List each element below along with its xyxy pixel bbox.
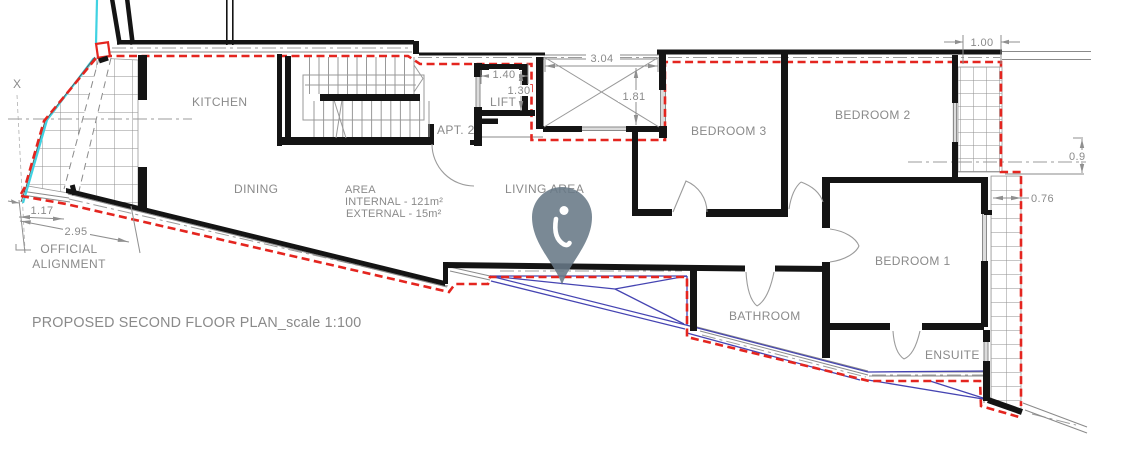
svg-text:1.40: 1.40 xyxy=(492,69,515,81)
svg-text:LIFT: LIFT xyxy=(490,95,517,109)
svg-text:INTERNAL - 121m²: INTERNAL - 121m² xyxy=(345,196,443,208)
svg-text:ALIGNMENT: ALIGNMENT xyxy=(32,257,106,271)
svg-text:0.76: 0.76 xyxy=(1031,193,1054,205)
svg-text:BEDROOM 3: BEDROOM 3 xyxy=(691,124,767,138)
svg-text:3.04: 3.04 xyxy=(590,53,613,65)
svg-text:APT. 2: APT. 2 xyxy=(437,123,475,137)
svg-text:2.95: 2.95 xyxy=(64,226,87,238)
svg-text:1.17: 1.17 xyxy=(30,205,53,217)
svg-text:ENSUITE: ENSUITE xyxy=(925,348,980,362)
svg-text:PROPOSED SECOND FLOOR PLAN_sca: PROPOSED SECOND FLOOR PLAN_scale 1:100 xyxy=(32,315,361,331)
svg-text:EXTERNAL - 15m²: EXTERNAL - 15m² xyxy=(346,208,442,220)
svg-text:AREA: AREA xyxy=(345,184,376,196)
svg-text:1.81: 1.81 xyxy=(622,91,645,103)
svg-text:1.00: 1.00 xyxy=(970,37,993,49)
svg-text:BATHROOM: BATHROOM xyxy=(729,309,801,323)
svg-text:BEDROOM 2: BEDROOM 2 xyxy=(835,108,911,122)
svg-text:KITCHEN: KITCHEN xyxy=(192,95,247,109)
svg-text:X: X xyxy=(13,77,21,91)
svg-text:BEDROOM 1: BEDROOM 1 xyxy=(875,254,951,268)
svg-text:DINING: DINING xyxy=(234,182,278,196)
svg-text:OFFICIAL: OFFICIAL xyxy=(40,242,97,256)
svg-text:0.9: 0.9 xyxy=(1069,151,1086,163)
